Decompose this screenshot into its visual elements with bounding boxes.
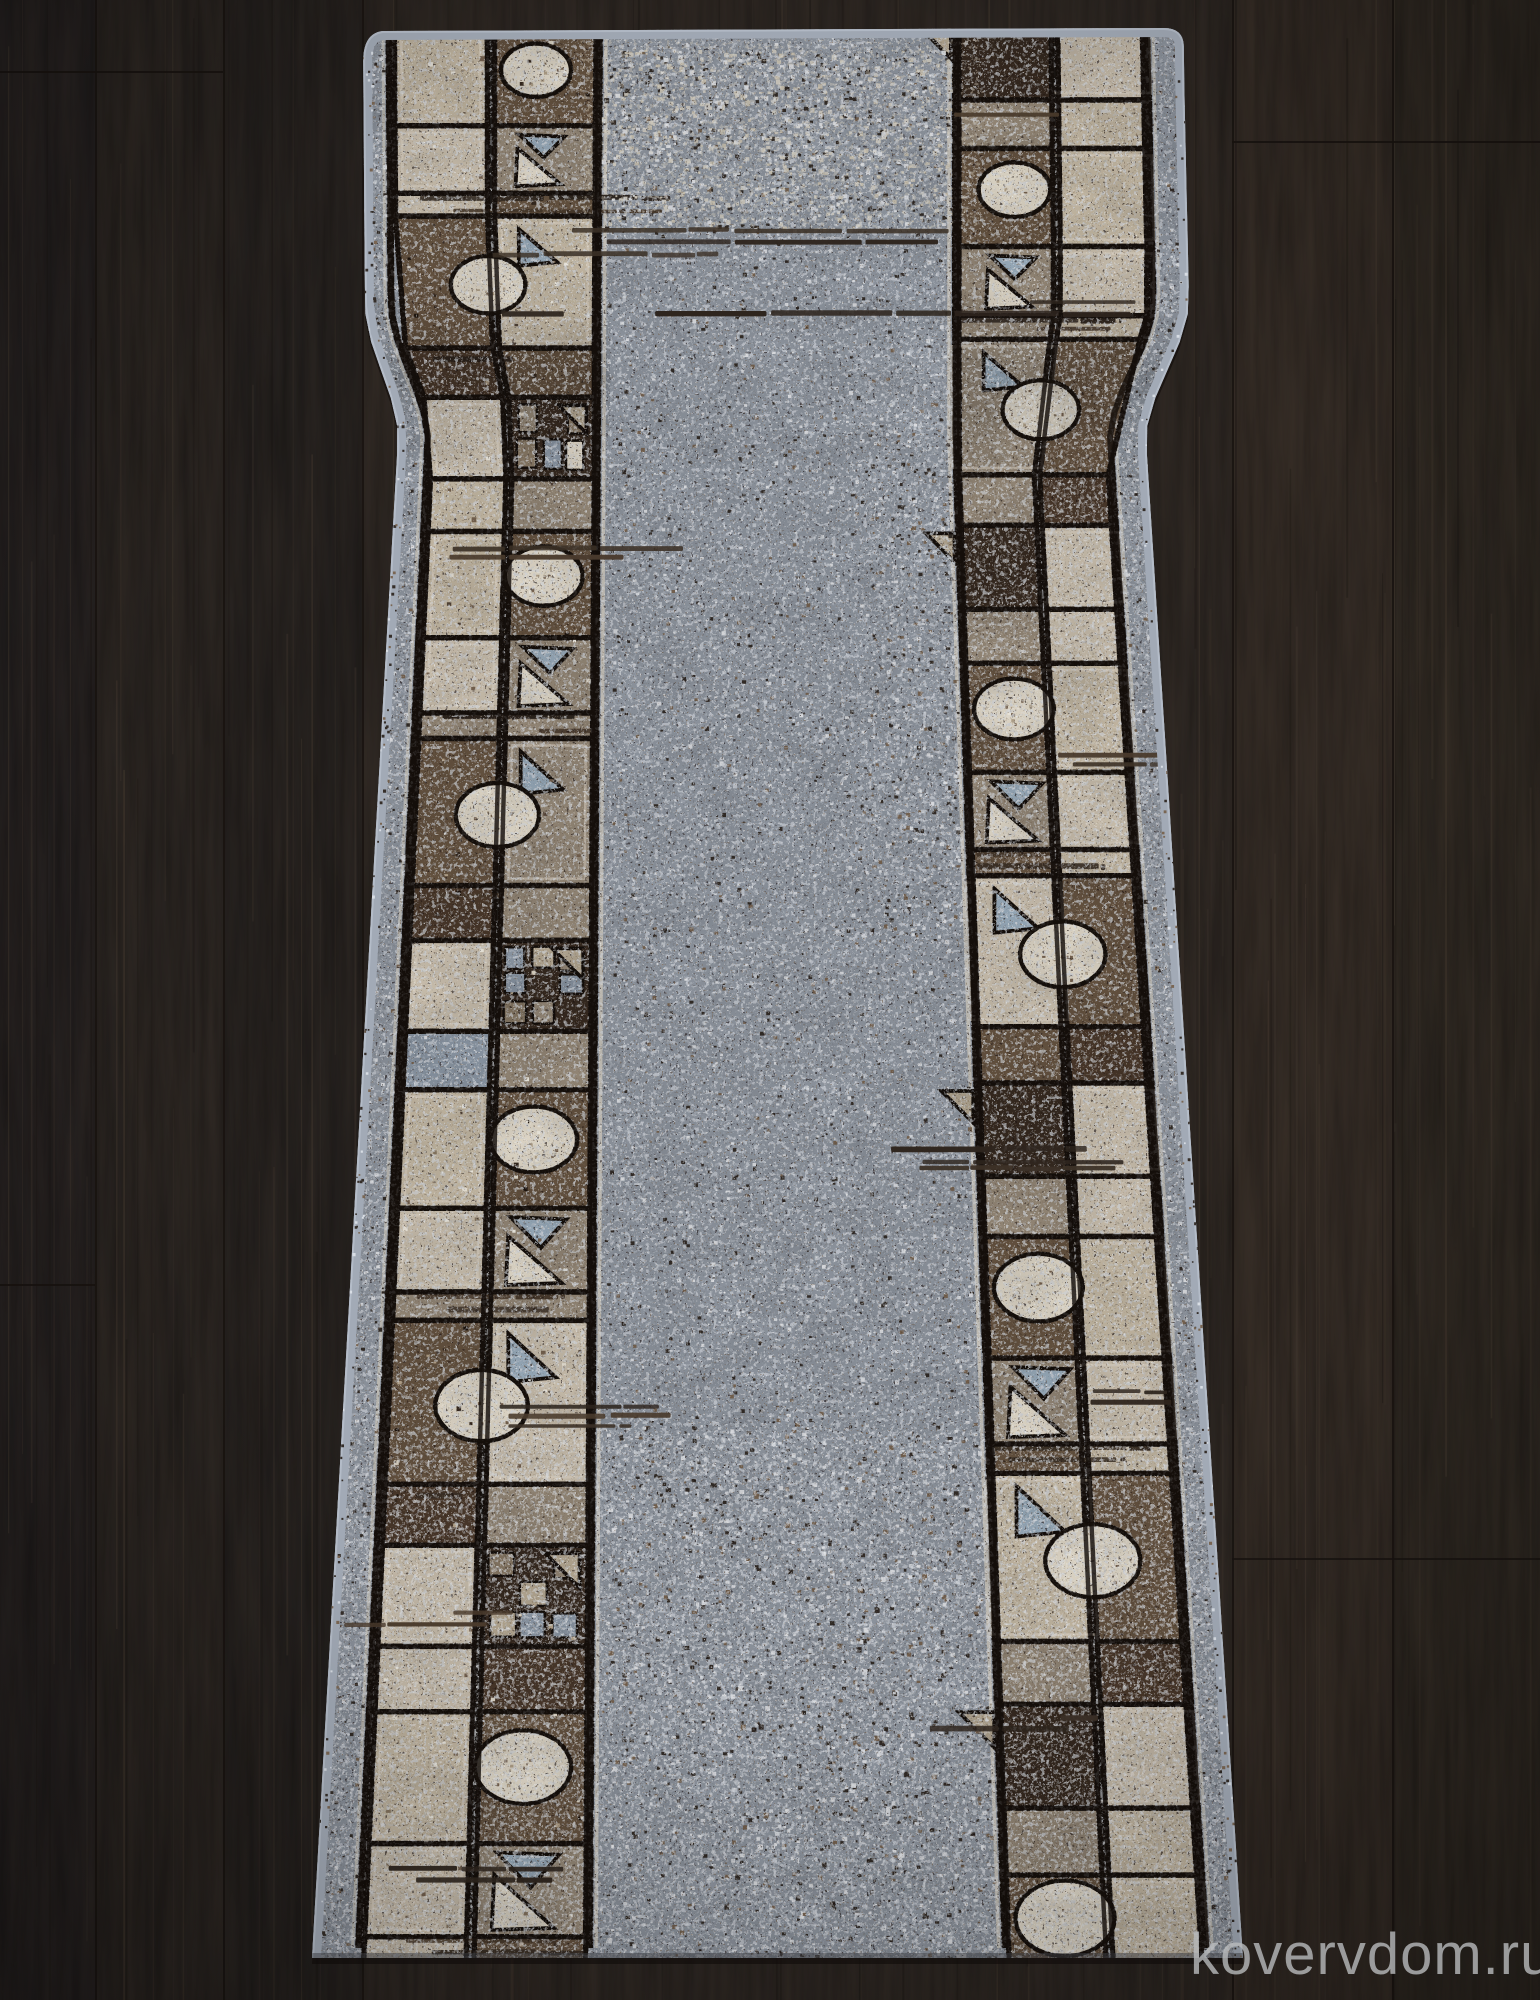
svg-text:kovervdom.ru: kovervdom.ru [1190, 1922, 1540, 1987]
